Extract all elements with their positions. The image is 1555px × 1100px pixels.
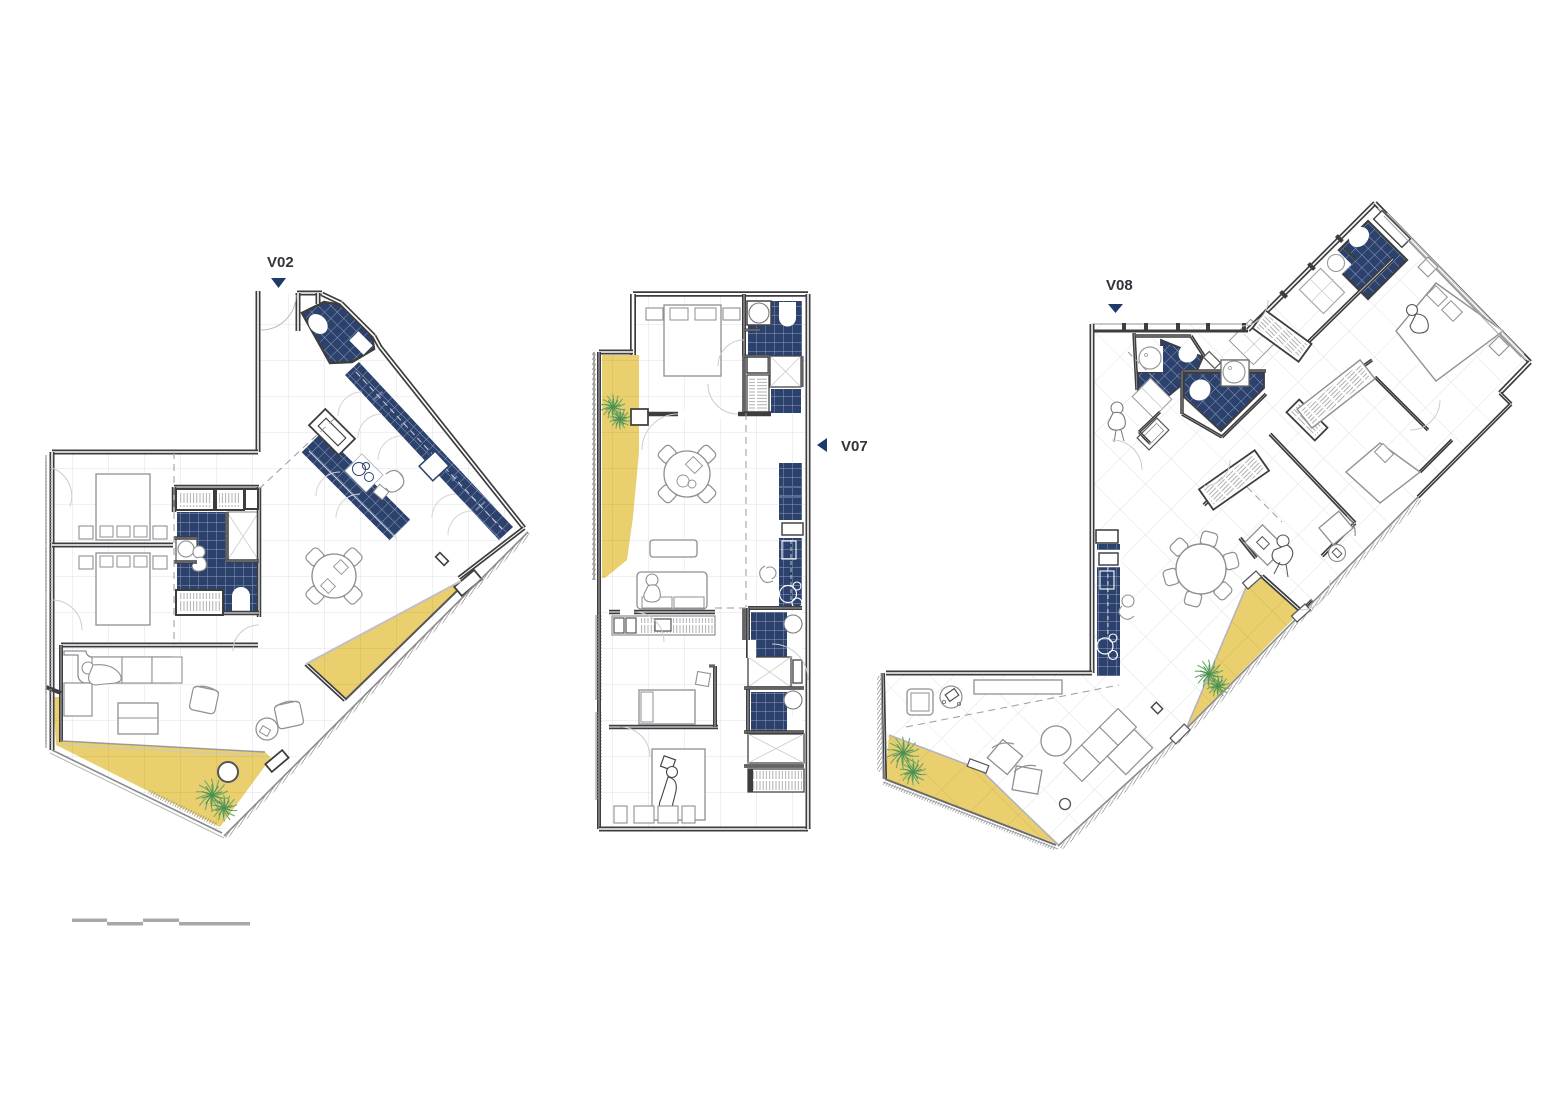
svg-text:V07: V07 <box>841 438 868 455</box>
svg-text:V02: V02 <box>267 254 294 271</box>
svg-text:V08: V08 <box>1106 277 1133 294</box>
